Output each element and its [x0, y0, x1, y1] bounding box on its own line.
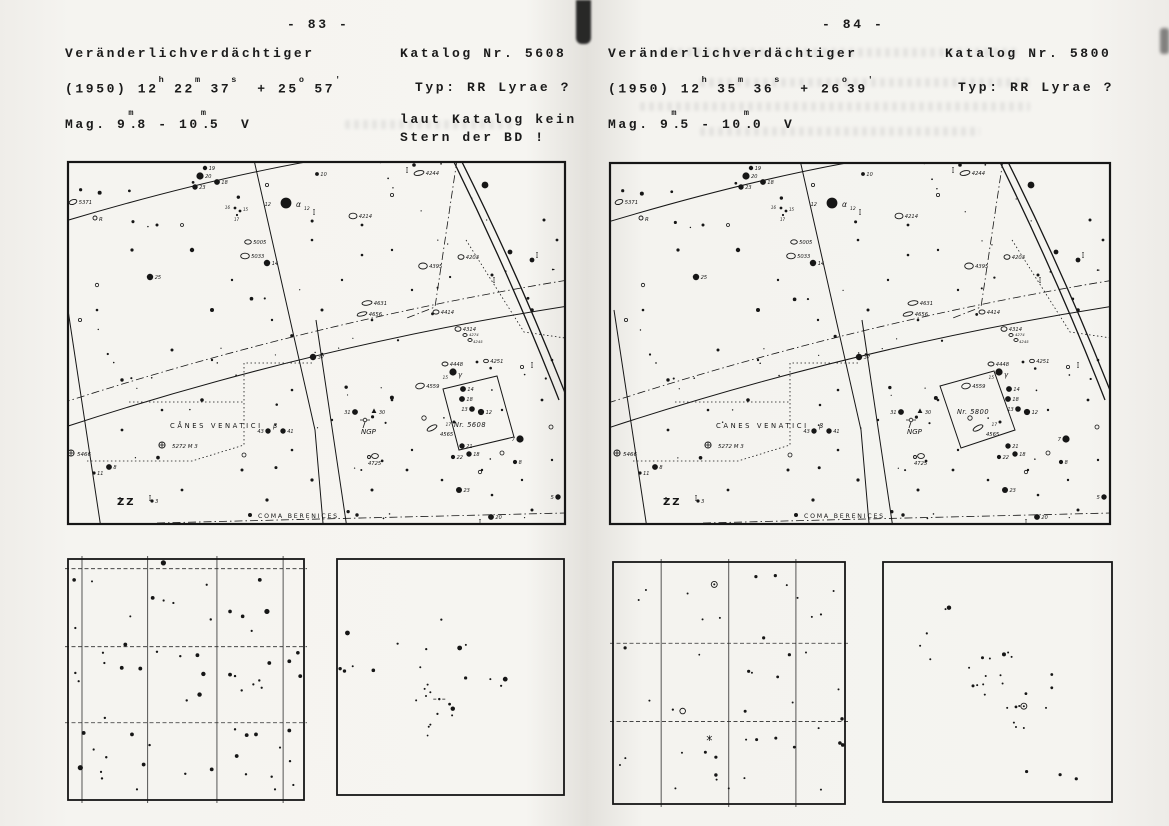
svg-text:4203: 4203 — [1012, 255, 1025, 261]
svg-text:α: α — [296, 200, 301, 209]
svg-text:5033: 5033 — [797, 254, 810, 260]
svg-text:15: 15 — [443, 375, 449, 380]
svg-text:20: 20 — [495, 515, 501, 521]
star-chart-page-84: 5371500550334244421443954203463146564414… — [610, 163, 1110, 524]
svg-text:4395: 4395 — [429, 264, 443, 270]
svg-text:4448: 4448 — [996, 362, 1010, 368]
svg-text:4725: 4725 — [914, 461, 928, 467]
svg-text:R: R — [99, 217, 103, 223]
svg-text:4631: 4631 — [920, 301, 933, 307]
svg-text:13: 13 — [461, 407, 467, 413]
svg-text:18: 18 — [767, 180, 773, 186]
svg-text:4448: 4448 — [450, 362, 464, 368]
svg-text:7: 7 — [512, 437, 516, 443]
svg-text:14: 14 — [1013, 387, 1019, 393]
finder-chart-84-gridded — [612, 561, 846, 805]
coordinates-line: (1950) 12h 35m 36s + 26o39' — [608, 80, 873, 96]
svg-text:4631: 4631 — [374, 301, 387, 307]
svg-text:22: 22 — [457, 455, 463, 461]
svg-text:5272 M 3: 5272 M 3 — [172, 444, 198, 450]
catalog-note-line2: Stern der BD ! — [400, 130, 546, 145]
page-edge-smudge — [1160, 28, 1169, 54]
svg-text:15: 15 — [243, 207, 249, 212]
svg-text:23: 23 — [464, 488, 470, 494]
page-number: - 83 - — [287, 17, 349, 32]
svg-text:23: 23 — [745, 185, 751, 191]
svg-text:4725: 4725 — [368, 461, 382, 467]
svg-text:5466: 5466 — [77, 452, 91, 458]
svg-text:CANES VENATICI: CANES VENATICI — [716, 422, 809, 430]
svg-text:11: 11 — [643, 471, 649, 477]
svg-text:5033: 5033 — [251, 254, 264, 260]
svg-text:4245: 4245 — [473, 339, 483, 344]
star-chart-page-83: 5371500550334244421443954203463146564414… — [68, 162, 565, 524]
svg-text:14: 14 — [467, 387, 473, 393]
svg-text:22: 22 — [1003, 455, 1009, 461]
coordinates-line: (1950) 12h 22m 37s + 25o 57' — [65, 80, 340, 96]
svg-text:4274: 4274 — [469, 332, 479, 337]
svg-text:CANES VENATICI: CANES VENATICI — [170, 422, 263, 430]
svg-text:15: 15 — [989, 375, 995, 380]
entry-title: Veränderlichverdächtiger — [65, 46, 315, 61]
finder-chart-84-plain — [882, 561, 1113, 803]
svg-text:4414: 4414 — [987, 310, 1000, 316]
svg-text:43: 43 — [803, 429, 809, 435]
svg-text:γ: γ — [1004, 371, 1009, 379]
svg-text:19: 19 — [209, 166, 215, 172]
svg-text:8: 8 — [519, 460, 522, 466]
svg-text:4414: 4414 — [441, 310, 454, 316]
svg-text:γ: γ — [458, 371, 463, 379]
svg-text:NGP: NGP — [907, 428, 923, 436]
svg-text:4565: 4565 — [440, 432, 454, 438]
svg-text:30: 30 — [925, 410, 931, 416]
scanned-book-spread: - 83 - Veränderlichverdächtiger Katalog … — [0, 0, 1169, 826]
svg-text:41: 41 — [287, 429, 293, 435]
svg-text:31: 31 — [344, 410, 350, 416]
svg-text:4559: 4559 — [426, 384, 439, 390]
svg-text:10: 10 — [320, 172, 326, 178]
catalog-number: Katalog Nr. 5608 — [400, 46, 566, 61]
svg-text:5272 M 3: 5272 M 3 — [718, 444, 744, 450]
catalog-note-line1: laut Katalog kein — [400, 112, 577, 127]
svg-text:11: 11 — [97, 471, 103, 477]
svg-text:25: 25 — [701, 275, 707, 281]
svg-text:37: 37 — [318, 355, 325, 361]
svg-text:20: 20 — [751, 174, 757, 180]
svg-text:17: 17 — [234, 217, 240, 222]
svg-text:31: 31 — [890, 410, 896, 416]
svg-text:23: 23 — [1010, 488, 1016, 494]
svg-text:5466: 5466 — [623, 452, 637, 458]
svg-text:4656: 4656 — [369, 312, 383, 318]
svg-text:5: 5 — [1097, 495, 1100, 501]
svg-text:23: 23 — [199, 185, 205, 191]
entry-title: Veränderlichverdächtiger — [608, 46, 858, 61]
svg-text:4274: 4274 — [1015, 332, 1025, 337]
svg-text:5371: 5371 — [625, 200, 638, 206]
svg-text:8: 8 — [113, 465, 116, 471]
svg-text:4214: 4214 — [905, 214, 918, 220]
svg-text:12: 12 — [850, 206, 856, 212]
svg-text:4245: 4245 — [1019, 339, 1029, 344]
svg-text:4251: 4251 — [490, 359, 503, 365]
svg-text:4656: 4656 — [915, 312, 929, 318]
bleed-through-artifact — [640, 102, 1030, 111]
svg-text:17: 17 — [446, 422, 452, 427]
finder-chart-83-gridded — [67, 558, 305, 801]
svg-text:12: 12 — [486, 410, 492, 416]
svg-text:α: α — [842, 200, 847, 209]
svg-text:18: 18 — [1019, 452, 1025, 458]
svg-text:18: 18 — [1012, 397, 1018, 403]
magnitude-line: Mag. 9m.5 - 10m.0 V — [608, 115, 794, 132]
type-line: Typ: RR Lyrae ? — [415, 80, 571, 95]
svg-text:4203: 4203 — [466, 255, 479, 261]
svg-text:R: R — [645, 217, 649, 223]
svg-text:20: 20 — [205, 174, 211, 180]
svg-text:41: 41 — [833, 429, 839, 435]
svg-text:20: 20 — [1041, 515, 1047, 521]
svg-text:12: 12 — [811, 202, 817, 208]
svg-text:β: β — [819, 422, 823, 430]
finder-chart-83-plain — [336, 558, 565, 796]
svg-text:5371: 5371 — [79, 200, 92, 206]
svg-text:30: 30 — [379, 410, 385, 416]
svg-text:15: 15 — [789, 207, 795, 212]
svg-text:4251: 4251 — [1036, 359, 1049, 365]
catalog-number: Katalog Nr. 5800 — [945, 46, 1111, 61]
svg-text:37: 37 — [864, 355, 871, 361]
svg-text:12: 12 — [304, 206, 310, 212]
svg-text:β: β — [273, 422, 277, 430]
svg-text:5005: 5005 — [799, 240, 813, 246]
svg-text:COMA BERENICES: COMA BERENICES — [258, 513, 339, 520]
svg-text:16: 16 — [771, 205, 777, 210]
svg-text:COMA BERENICES: COMA BERENICES — [804, 513, 885, 520]
gutter-shadow-artifact — [576, 0, 591, 44]
svg-text:4244: 4244 — [972, 171, 985, 177]
svg-text:14: 14 — [272, 261, 278, 267]
page-number: - 84 - — [822, 17, 884, 32]
svg-text:12: 12 — [265, 202, 271, 208]
magnitude-line: Mag. 9m.8 - 10m.5 V — [65, 115, 251, 132]
svg-text:21: 21 — [1012, 444, 1018, 450]
svg-text:Nr. 5800: Nr. 5800 — [957, 408, 989, 416]
svg-text:8: 8 — [1065, 460, 1068, 466]
svg-text:18: 18 — [473, 452, 479, 458]
svg-text:8: 8 — [659, 465, 662, 471]
svg-text:4559: 4559 — [972, 384, 985, 390]
svg-text:4395: 4395 — [975, 264, 989, 270]
svg-text:17: 17 — [992, 422, 998, 427]
svg-text:3: 3 — [155, 499, 158, 505]
svg-text:5: 5 — [551, 495, 554, 501]
svg-text:17: 17 — [780, 217, 786, 222]
svg-text:3: 3 — [701, 499, 704, 505]
svg-text:4214: 4214 — [359, 214, 372, 220]
svg-text:10: 10 — [866, 172, 872, 178]
svg-text:4244: 4244 — [426, 171, 439, 177]
svg-text:25: 25 — [155, 275, 161, 281]
svg-text:12: 12 — [1032, 410, 1038, 416]
svg-text:18: 18 — [221, 180, 227, 186]
svg-text:Nr. 5608: Nr. 5608 — [454, 421, 486, 429]
svg-text:18: 18 — [466, 397, 472, 403]
svg-text:5005: 5005 — [253, 240, 267, 246]
svg-text:19: 19 — [755, 166, 761, 172]
svg-text:14: 14 — [818, 261, 824, 267]
svg-text:16: 16 — [225, 205, 231, 210]
type-line: Typ: RR Lyrae ? — [958, 80, 1114, 95]
svg-text:7: 7 — [1058, 437, 1062, 443]
svg-text:NGP: NGP — [361, 428, 377, 436]
svg-text:43: 43 — [257, 429, 263, 435]
